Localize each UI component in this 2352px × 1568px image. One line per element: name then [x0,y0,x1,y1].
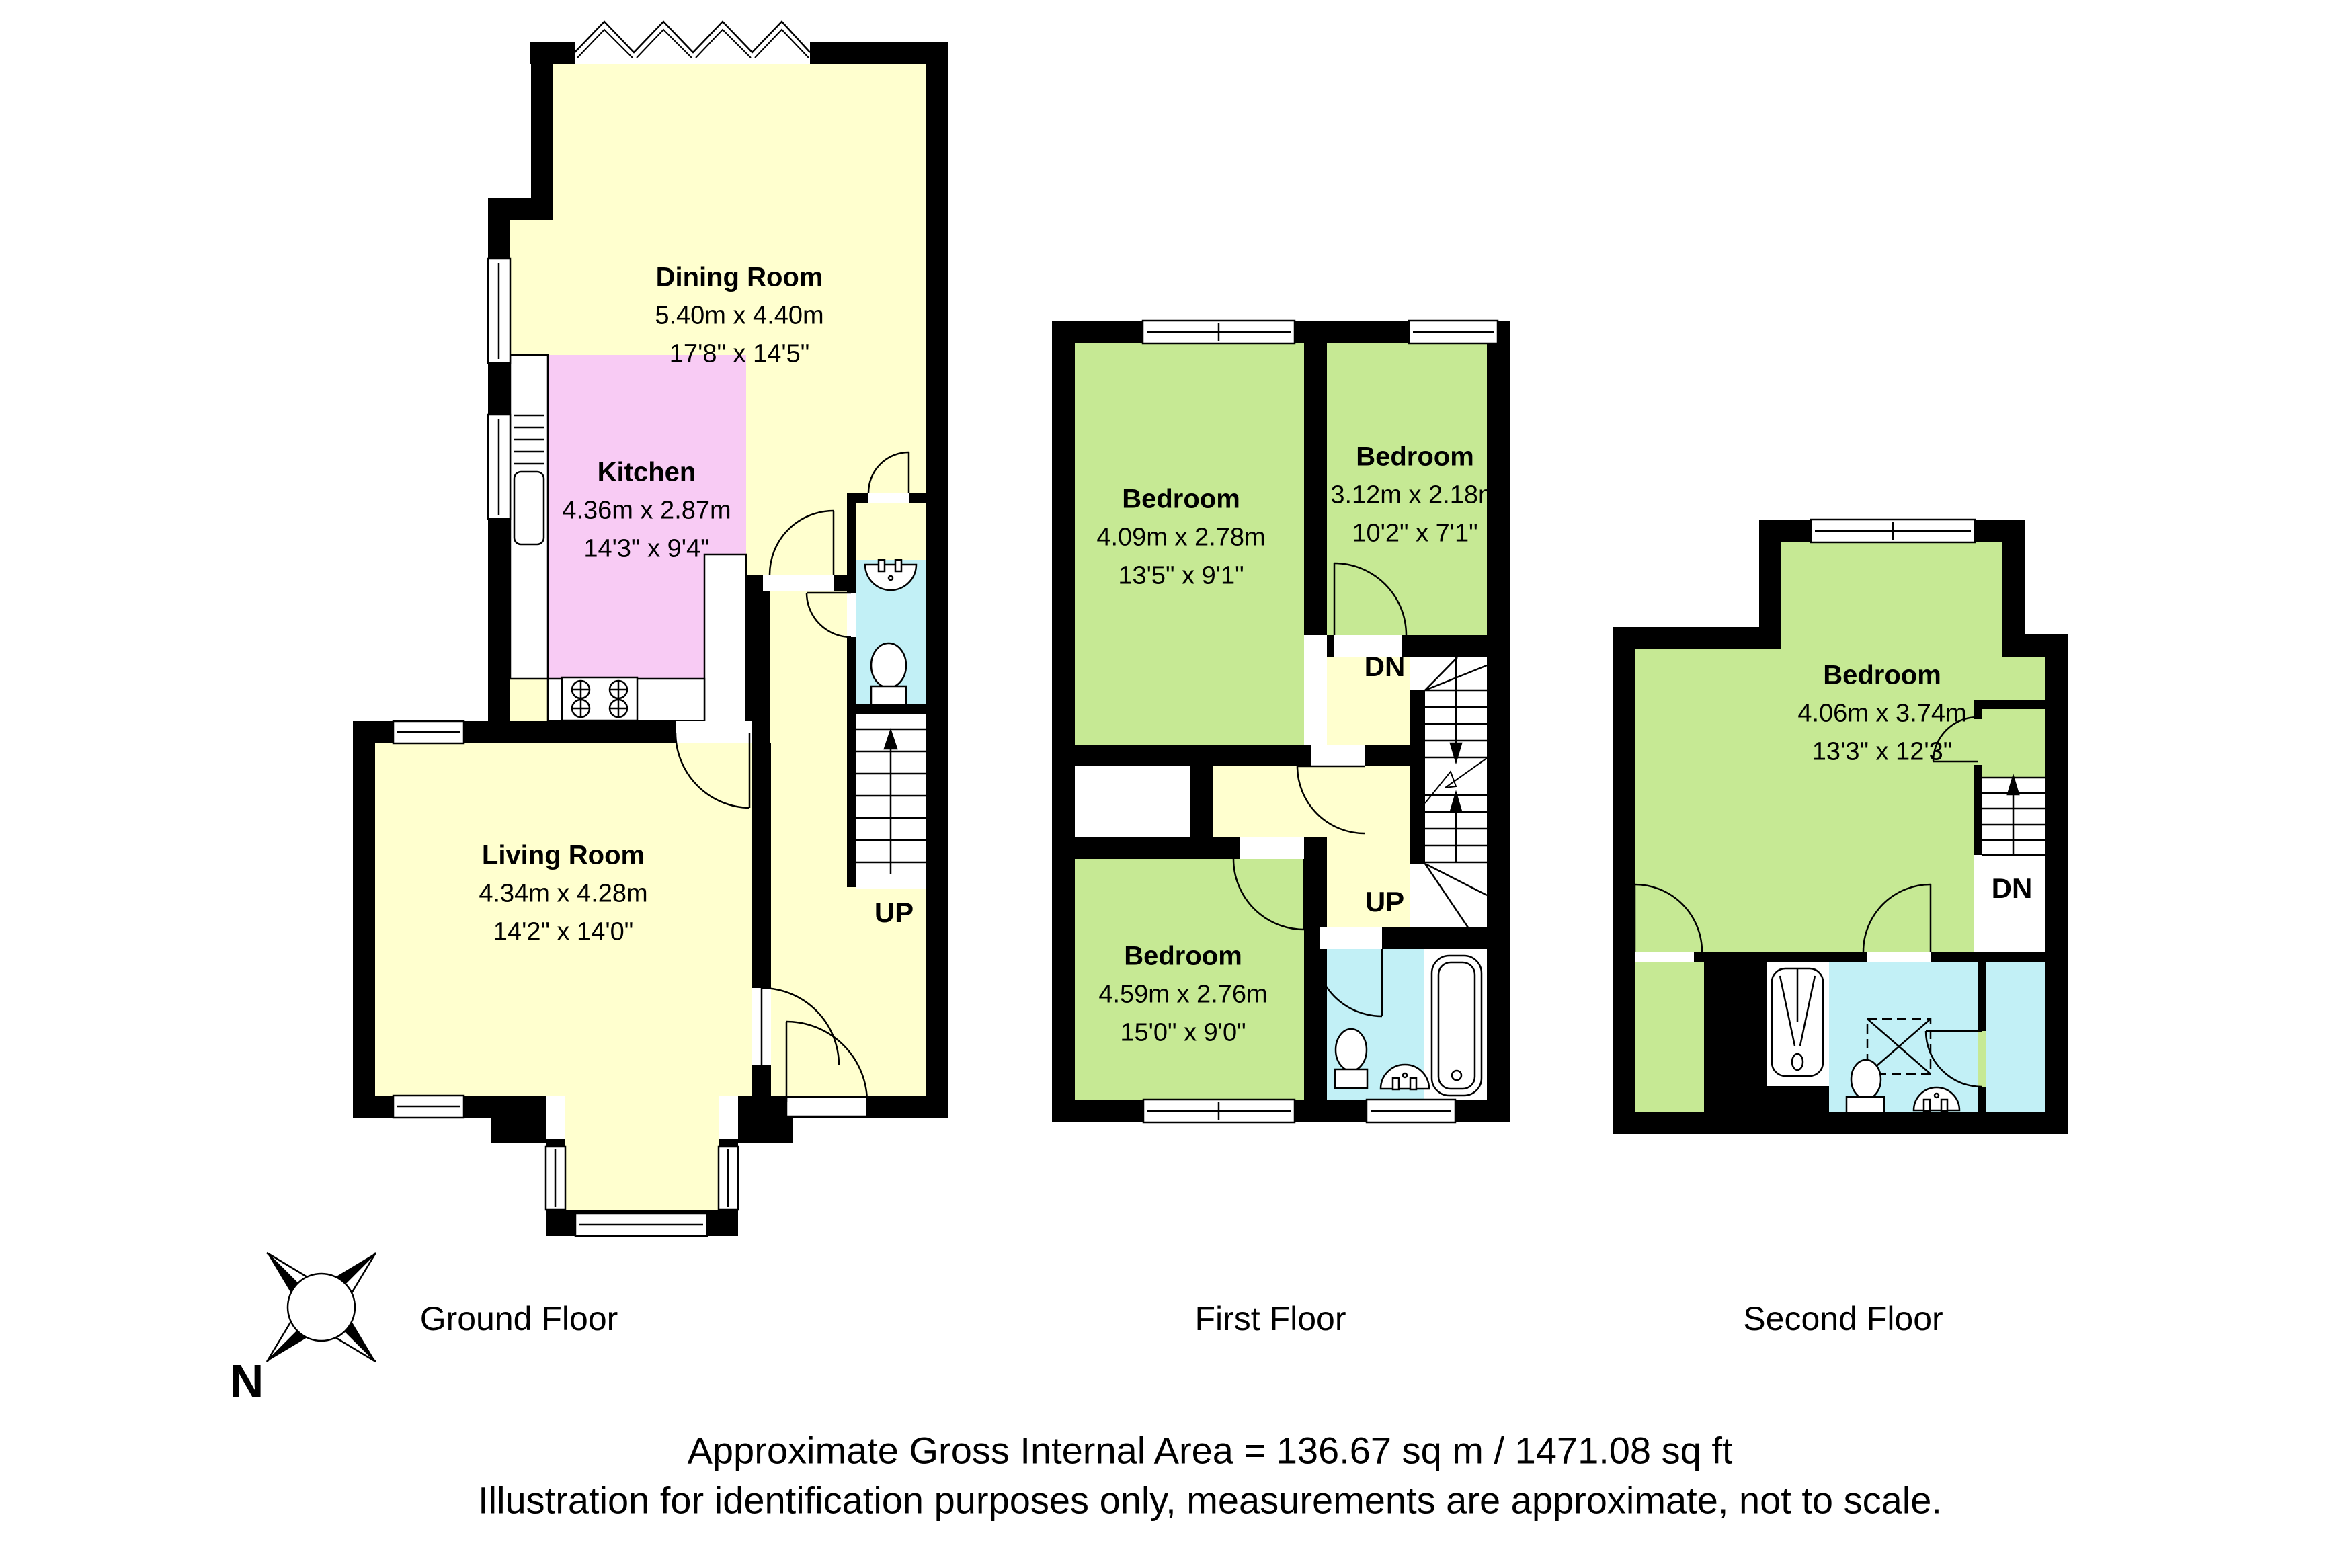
door-opening [868,493,909,503]
first-up-label: UP [1365,886,1404,918]
second-bedroom-label: Bedroom [1823,661,1941,691]
floorplan-page: Dining Room 5.40m x 4.40m 17'8" x 14'5" … [0,0,2352,1568]
dining-room-imperial: 17'8" x 14'5" [670,340,809,369]
bedroom3-imperial: 15'0" x 9'0" [1120,1019,1246,1048]
bedroom2-metric: 3.12m x 2.18m [1330,481,1499,510]
door-opening [847,593,856,637]
second-floor-caption: Second Floor [1743,1299,1943,1338]
landing-alcove-floor [1213,766,1327,837]
wall [2045,657,2068,1134]
bay-floor [565,1139,719,1210]
bedroom2-label: Bedroom [1356,442,1474,472]
door-opening [1240,837,1304,859]
bedroom1-label: Bedroom [1122,485,1240,515]
wall [1304,343,1327,635]
wall [353,721,375,1118]
bathtub-fixture [1772,968,1823,1076]
bedroom3-floor [1075,859,1304,1100]
bedroom2-imperial: 10'2" x 7'1" [1352,520,1477,548]
door-opening [1867,952,1931,962]
wall [491,1096,546,1143]
first-floor-caption: First Floor [1195,1299,1346,1338]
living-room-label: Living Room [482,841,645,871]
wall [1190,766,1213,837]
wall [926,42,948,1118]
toilet-fixture [1335,1029,1367,1088]
bedroom3-metric: 4.59m x 2.76m [1098,981,1267,1009]
bathtub-fixture [1432,956,1482,1096]
wall [1613,627,1635,1134]
wall [1487,321,1510,1122]
ground-floor-plan [353,22,948,1236]
footer-disclaimer-text: Illustration for identification purposes… [478,1479,1942,1522]
footer-area-text: Approximate Gross Internal Area = 136.67… [688,1429,1733,1473]
second-bedroom-metric: 4.06m x 3.74m [1797,700,1966,729]
first-dn-label: DN [1365,651,1406,683]
bedroom1-metric: 4.09m x 2.78m [1096,524,1265,552]
wall [531,42,553,220]
second-floor-plan [1613,520,2068,1134]
toilet-fixture [871,643,906,705]
door-opening [1311,745,1365,766]
compass-rose [267,1253,376,1362]
wall [746,591,770,743]
bedroom3-label: Bedroom [1124,942,1242,972]
wall [1410,690,1425,864]
wall [1978,962,1986,1031]
wall [1635,952,2045,962]
wall [1613,1112,2068,1134]
wall [1978,1087,1986,1112]
second-bedroom-imperial: 13'3" x 12'3" [1812,738,1952,767]
kitchen-label: Kitchen [598,458,696,488]
compass-north-label: N [230,1354,264,1408]
living-room-imperial: 14'2" x 14'0" [493,918,633,947]
wall [1974,765,1982,855]
ground-floor-caption: Ground Floor [420,1299,618,1338]
wall [1613,627,1781,649]
wall [2002,520,2025,634]
stove-fixture [562,677,637,720]
wall [1767,1086,1829,1112]
living-room-metric: 4.34m x 4.28m [479,880,647,909]
dining-room-metric: 5.40m x 4.40m [655,302,823,331]
door-opening [1320,927,1382,949]
floorplan-drawing [0,0,2352,1568]
wall [847,714,856,887]
door-opening [1635,952,1694,962]
wall [1052,321,1075,1122]
void [1704,962,1767,1112]
bathroom-floor [1829,962,1978,1112]
dining-room-label: Dining Room [656,263,823,293]
kitchen-counter [704,554,746,723]
front-door-opening [786,1097,867,1116]
kitchen-metric: 4.36m x 2.87m [562,497,731,526]
wall [1974,700,2045,709]
second-dn-label: DN [1992,872,2033,905]
wall [2002,634,2068,657]
kitchen-imperial: 14'3" x 9'4" [583,535,709,564]
door-opening [763,575,834,591]
ground-up-label: UP [875,897,914,929]
bedroom1-imperial: 13'5" x 9'1" [1118,562,1244,591]
door-opening [676,721,752,743]
wall [1304,859,1327,1100]
bathroom-floor [1986,962,2045,1112]
kitchen-sink-fixture [514,472,544,544]
